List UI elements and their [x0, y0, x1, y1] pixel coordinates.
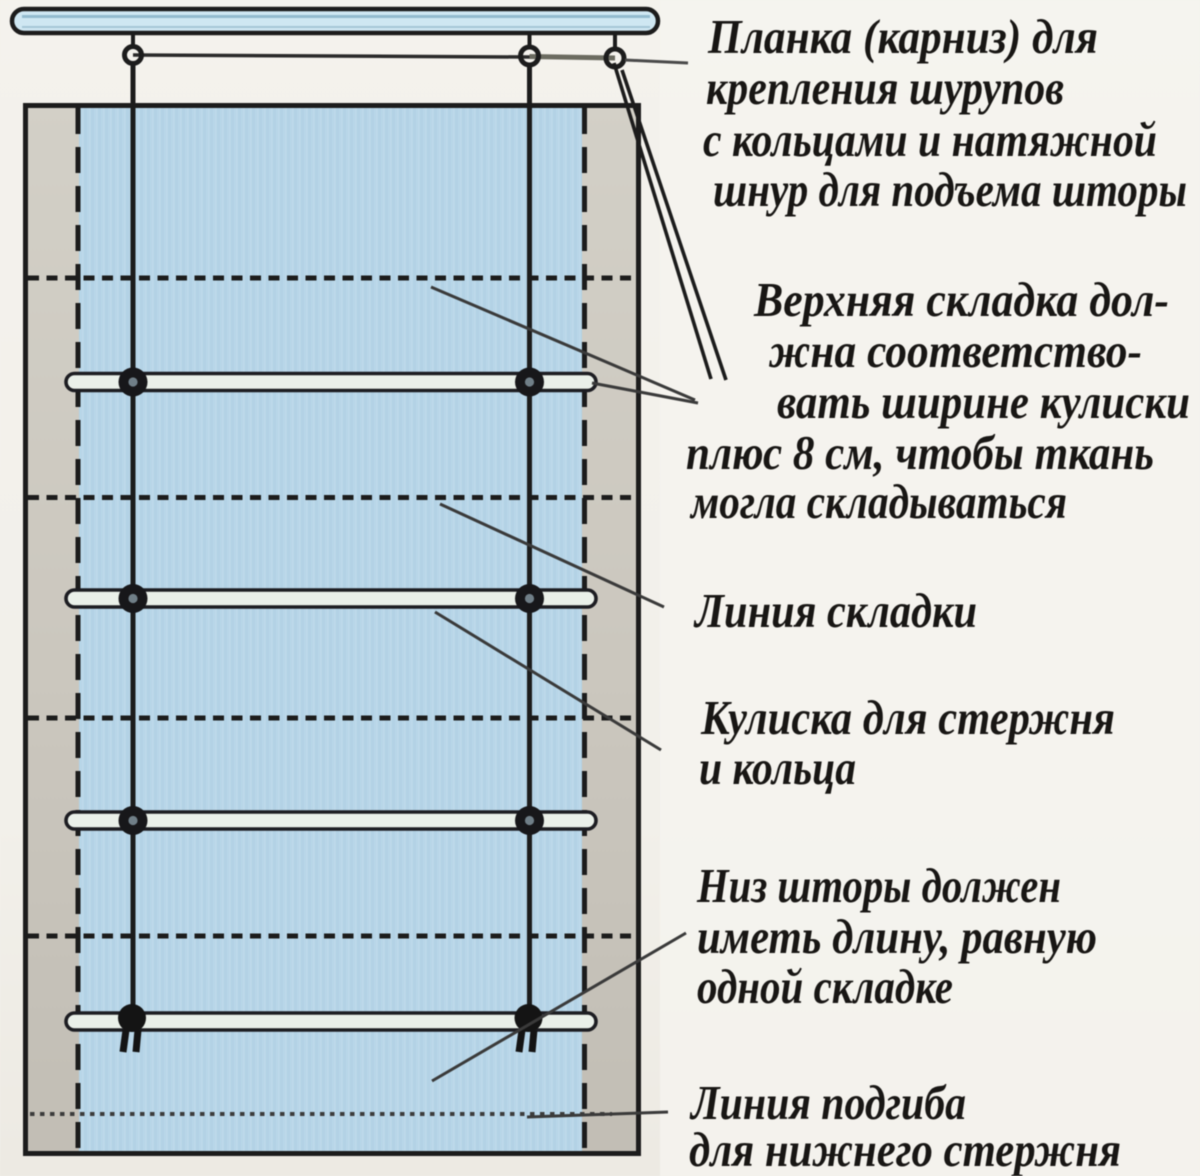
svg-text:Кулиска для стержня: Кулиска для стержня — [700, 690, 1115, 745]
svg-text:могла складываться: могла складываться — [689, 474, 1067, 529]
svg-text:вать ширине кулиски: вать ширине кулиски — [777, 374, 1190, 429]
svg-text:и кольца: и кольца — [699, 740, 856, 795]
svg-text:с кольцами и натяжной: с кольцами и натяжной — [703, 112, 1157, 167]
svg-text:Планка (карниз) для: Планка (карниз) для — [707, 9, 1098, 64]
svg-text:Низ шторы должен: Низ шторы должен — [696, 858, 1061, 913]
svg-text:одной складке: одной складке — [697, 959, 953, 1014]
svg-text:крепления шурупов: крепления шурупов — [706, 60, 1064, 115]
svg-text:иметь длину, равную: иметь длину, равную — [697, 909, 1097, 964]
svg-text:Линия складки: Линия складки — [693, 583, 977, 638]
svg-text:жна соответство-: жна соответство- — [768, 323, 1142, 378]
svg-text:Верхняя складка дол-: Верхняя складка дол- — [753, 272, 1169, 327]
svg-text:плюс 8 см, чтобы ткань: плюс 8 см, чтобы ткань — [686, 425, 1154, 480]
svg-text:для нижнего стержня: для нижнего стержня — [689, 1122, 1121, 1176]
svg-text:шнур для подъема шторы: шнур для подъема шторы — [713, 162, 1187, 217]
